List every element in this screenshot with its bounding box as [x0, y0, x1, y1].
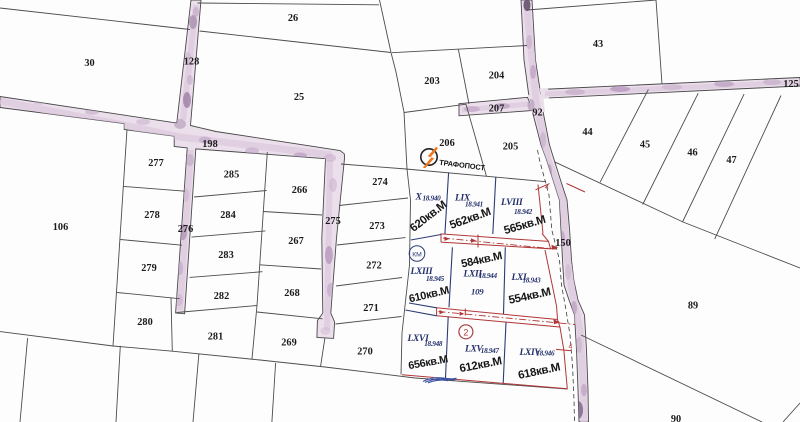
svg-text:43: 43	[593, 39, 603, 50]
svg-text:47: 47	[726, 155, 736, 166]
svg-text:284: 284	[220, 210, 235, 221]
svg-text:281: 281	[208, 332, 223, 343]
svg-text:269: 269	[281, 338, 296, 349]
svg-text:268: 268	[284, 288, 299, 299]
svg-text:266: 266	[292, 185, 307, 196]
svg-text:18.948: 18.948	[424, 340, 443, 348]
svg-text:46: 46	[687, 148, 697, 159]
svg-text:203: 203	[424, 76, 439, 87]
svg-text:273: 273	[369, 221, 384, 232]
svg-text:89: 89	[688, 301, 698, 312]
svg-text:18.947: 18.947	[481, 347, 500, 355]
svg-text:2: 2	[463, 328, 468, 338]
svg-text:18.946: 18.946	[536, 349, 555, 357]
svg-text:278: 278	[144, 210, 159, 221]
svg-text:277: 277	[148, 158, 163, 169]
svg-text:267: 267	[288, 236, 303, 247]
svg-text:198: 198	[202, 139, 217, 150]
svg-text:18.943: 18.943	[523, 276, 542, 284]
svg-text:106: 106	[53, 222, 68, 233]
svg-text:92: 92	[532, 107, 542, 118]
svg-text:276: 276	[178, 224, 193, 235]
svg-text:279: 279	[141, 263, 156, 274]
svg-text:45: 45	[640, 140, 650, 151]
svg-text:271: 271	[363, 303, 378, 314]
svg-text:18.941: 18.941	[465, 200, 483, 208]
svg-text:18.944: 18.944	[479, 272, 498, 280]
svg-text:272: 272	[366, 261, 381, 272]
svg-text:285: 285	[224, 170, 239, 181]
svg-text:274: 274	[372, 177, 387, 188]
svg-text:282: 282	[214, 291, 229, 302]
svg-text:X: X	[415, 193, 423, 203]
svg-text:283: 283	[218, 250, 233, 261]
svg-text:18.942: 18.942	[514, 208, 533, 216]
svg-text:270: 270	[357, 347, 372, 358]
svg-text:25: 25	[294, 92, 304, 103]
svg-text:205: 205	[503, 142, 518, 153]
svg-text:109: 109	[471, 287, 484, 297]
svg-text:КМ: КМ	[412, 251, 422, 258]
svg-text:LVIII: LVIII	[500, 198, 523, 208]
svg-text:275: 275	[325, 216, 340, 227]
svg-text:90: 90	[671, 414, 681, 422]
svg-text:18.945: 18.945	[426, 275, 445, 283]
svg-text:30: 30	[84, 58, 94, 69]
svg-text:128: 128	[184, 57, 199, 68]
svg-text:204: 204	[489, 71, 504, 82]
svg-text:206: 206	[439, 138, 454, 149]
svg-text:125: 125	[783, 79, 798, 90]
svg-text:150: 150	[555, 238, 570, 249]
svg-text:4: 4	[569, 344, 573, 351]
svg-text:26: 26	[288, 13, 298, 24]
svg-text:44: 44	[582, 127, 592, 138]
svg-text:207: 207	[489, 104, 504, 115]
svg-text:280: 280	[137, 317, 152, 328]
